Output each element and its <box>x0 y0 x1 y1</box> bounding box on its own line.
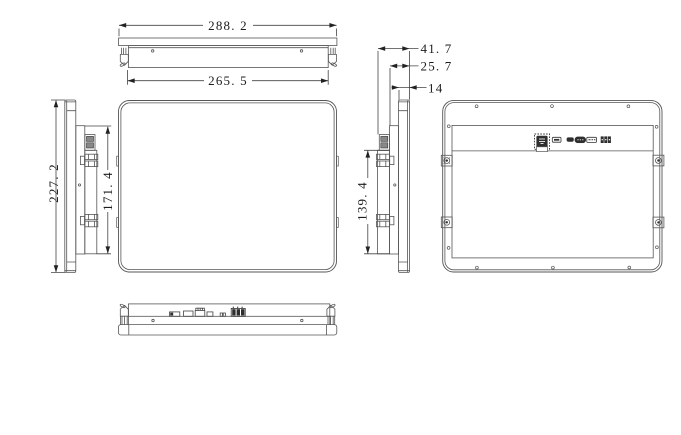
svg-text:265. 5: 265. 5 <box>208 73 248 88</box>
svg-text:14: 14 <box>428 80 443 95</box>
svg-text:41. 7: 41. 7 <box>421 41 453 56</box>
svg-text:171. 4: 171. 4 <box>100 171 115 211</box>
svg-text:227. 2: 227. 2 <box>46 163 61 203</box>
svg-text:288. 2: 288. 2 <box>208 18 248 33</box>
svg-text:25. 7: 25. 7 <box>421 59 453 74</box>
svg-text:139. 4: 139. 4 <box>355 181 370 221</box>
